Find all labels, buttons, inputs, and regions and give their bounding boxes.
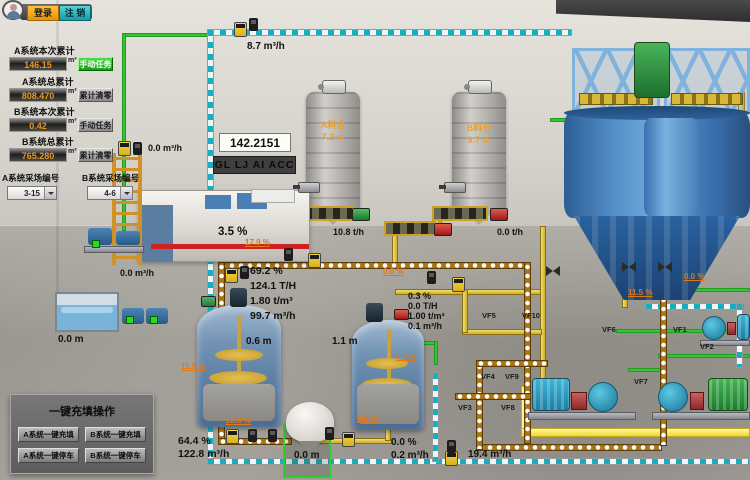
valve-pct-right-top: 0.0 % (684, 272, 704, 281)
totalizer-display: 142.2151 (219, 133, 291, 152)
valve-vf10[interactable] (518, 322, 541, 339)
valve-vf9[interactable] (504, 351, 527, 368)
tag-vf6: VF6 (602, 325, 616, 334)
ftank-agitator-1 (205, 195, 231, 209)
water-storage-tank[interactable] (55, 292, 119, 332)
pipe-green-tank2-drop (434, 341, 438, 365)
valve-pct-right-mid: 11.5 % (628, 288, 652, 297)
pump-2-coupling (690, 392, 704, 410)
silo-a-level: 7.2 m (306, 132, 360, 142)
valve-vf7[interactable] (636, 359, 659, 376)
feed-pump-run-indicator (92, 240, 100, 248)
water-pump-2-indicator (150, 316, 158, 324)
valve-vf3[interactable] (457, 384, 480, 401)
hmi-screen: 8.7 m³/h 0.0 m³/h 0.0 m³/h 3.5 % 0.0 m 0… (0, 0, 750, 480)
valve-spare[interactable] (527, 345, 550, 362)
water-pump-1-indicator (126, 316, 134, 324)
manual-valve-2-icon (622, 262, 636, 272)
pump-3-coupling (727, 322, 736, 335)
row-b-batch-value: 0.42 (9, 118, 67, 132)
tag-vf5: VF5 (482, 311, 496, 320)
pump-1-volute[interactable] (588, 382, 618, 412)
silo-a-name: A料仓 (306, 118, 360, 131)
drain-flowmeter-icon (445, 451, 458, 466)
row-a-batch-unit: m³ (68, 57, 77, 64)
one-key-title: 一键充填操作 (11, 403, 153, 419)
tag-vf8: VF8 (501, 403, 515, 412)
valve-pct-line-b: 0.0 % (383, 267, 403, 276)
row-b-batch-unit: m³ (68, 118, 77, 125)
site-a-select[interactable]: 3-15 (7, 186, 57, 200)
transmitter-left-bottom-icon (240, 266, 249, 279)
a-one-key-stop-button[interactable]: A系统一键停车 (18, 448, 79, 463)
hopper-line-valve[interactable] (358, 422, 381, 439)
agitator-2-motor[interactable] (366, 303, 383, 322)
row-a-batch-value: 146.15 (9, 57, 67, 71)
line-b-readings: 0.3 % 0.0 T/H 1.00 t/m³ 0.1 m³/h (408, 291, 445, 331)
left-wall-valve[interactable] (157, 356, 180, 373)
transmitter-left-top-icon (133, 142, 142, 155)
pump-train-2-base (652, 412, 750, 420)
hopper-line-inst (325, 427, 334, 440)
login-button[interactable]: 登录 (27, 5, 59, 21)
bottom-left-readings: 64.4 % 122.8 m³/h (178, 435, 229, 461)
b-one-key-fill-button[interactable]: B系统一键充填 (85, 427, 146, 442)
pump-3-motor[interactable] (737, 314, 750, 340)
status-marquee: GL LJ AI ACC (213, 156, 296, 174)
tag-vf3: VF3 (458, 403, 472, 412)
right-top-valve[interactable] (680, 280, 703, 297)
pipe-water-tank2-drain (432, 372, 439, 462)
tag-vf1: VF1 (673, 325, 687, 334)
slurry-control-valve[interactable] (252, 248, 275, 265)
site-b-label: B系统采场编号 (82, 172, 139, 184)
pump-3-volute[interactable] (702, 316, 726, 340)
pipe-yellow-discharge-main (521, 428, 750, 437)
row-b-batch-label: B系统本次累计 (14, 105, 75, 118)
silo-b-blower-motor (468, 80, 492, 94)
reset-total-a-button[interactable]: 累计清零 (78, 88, 113, 102)
valve-vf4[interactable] (481, 351, 504, 368)
silo-b-level: 9.7 m (452, 135, 506, 145)
flowmeter-left-top-icon (118, 141, 131, 156)
logout-button[interactable]: 注 销 (59, 5, 91, 21)
manual-valve-3-icon (658, 262, 672, 272)
pump-1-motor[interactable] (532, 378, 570, 411)
site-a-label: A系统采场编号 (2, 172, 59, 184)
valve-pct-hopper-line: 0.0 % (357, 414, 377, 423)
ftank-frame (139, 205, 173, 262)
flowmeter-a-icon (308, 253, 321, 268)
conveyor-mid[interactable] (384, 221, 436, 236)
flowmeter-top-icon (234, 22, 247, 37)
valve-vf6[interactable] (619, 321, 642, 338)
site-b-select[interactable]: 4-6 (87, 186, 133, 200)
pump-2-volute[interactable] (658, 382, 688, 412)
feed-pump-2[interactable] (116, 231, 140, 245)
left-top-flow-reading: 0.0 m³/h (148, 143, 182, 153)
tag-vf7: VF7 (634, 377, 648, 386)
row-b-total-value: 765.280 (9, 148, 67, 162)
tag-vf4: VF4 (481, 372, 495, 381)
manual-task-b-button[interactable]: 手动任务 (78, 118, 113, 132)
agitator-1-motor[interactable] (230, 288, 247, 307)
reset-total-b-button[interactable]: 累计清零 (78, 148, 113, 162)
conveyor-a-motor[interactable] (352, 208, 370, 221)
row-b-total-label: B系统总累计 (22, 135, 74, 148)
pipe-water-top (207, 29, 572, 36)
valve-pct-left: 11.9 % (181, 362, 205, 371)
silo-b-name: B料仓 (452, 121, 506, 134)
silo-a-blower-motor (322, 80, 346, 94)
one-key-panel: 一键充填操作 A系统一键充填 B系统一键充填 A系统一键停车 B系统一键停车 (10, 394, 154, 474)
a-one-key-fill-button[interactable]: A系统一键充填 (18, 427, 79, 442)
valve-vf8[interactable] (500, 384, 523, 401)
agitator-1-aux-pump (201, 296, 216, 307)
thickener-feedwell (644, 118, 698, 216)
silo-a-level-sensor (298, 182, 320, 193)
transmitter-top-icon (249, 18, 258, 31)
hopper-line-meter-icon (342, 432, 355, 447)
left-bottom-flow-reading: 0.0 m³/h (120, 268, 154, 278)
row-b-total-unit: m³ (68, 148, 77, 155)
bridge-conveyor-right (671, 93, 743, 105)
silo-b-level-sensor (444, 182, 466, 193)
conveyor-b-rate: 0.0 t/h (497, 227, 523, 237)
b-one-key-stop-button[interactable]: B系统一键停车 (85, 448, 146, 463)
density-meter-a-icon (284, 248, 293, 261)
row-a-total-value: 808.470 (9, 88, 67, 102)
water-level: 0.0 m (58, 334, 84, 345)
row-a-total-unit: m³ (68, 88, 77, 95)
conveyor-b-motor[interactable] (490, 208, 508, 221)
density-meter-b-icon (427, 271, 436, 284)
drain-transmitter-icon (447, 440, 456, 453)
top-flow-reading: 8.7 m³/h (247, 41, 285, 52)
tank2-level: 1.1 m (332, 336, 358, 347)
pump-2-motor[interactable] (708, 378, 748, 411)
valve-pct-tank2-out: 0.0 % (396, 352, 416, 361)
manual-valve-1-icon (546, 266, 560, 276)
tag-vf9: VF9 (505, 372, 519, 381)
valve-pct-tank1-out: 28.8 % (226, 416, 251, 425)
row-a-total-label: A系统总累计 (22, 75, 74, 88)
ftank-top-slab (251, 189, 295, 203)
conveyor-mid-motor[interactable] (434, 223, 452, 236)
tank1-level: 0.6 m (246, 336, 272, 347)
manual-task-a-button[interactable]: 手动任务 (78, 57, 113, 71)
tag-vf10: VF10 (522, 311, 540, 320)
pump-train-1-base (528, 412, 636, 420)
drain-flow-reading: 19.4 m³/h (468, 449, 511, 460)
thickener-bridge-right (664, 48, 750, 114)
bottom-mid-readings: 0.0 % 0.2 m³/h (391, 437, 429, 463)
row-a-batch-label: A系统本次累计 (14, 44, 75, 57)
valve-vf5[interactable] (478, 322, 501, 339)
tank1-out-inst-1 (248, 429, 257, 442)
pipe-green-top (124, 33, 209, 37)
valve-vf1[interactable] (649, 321, 672, 338)
tank1-out-inst-2 (268, 429, 277, 442)
flowmeter-left-bottom-icon (225, 268, 238, 283)
conveyor-a-rate: 10.8 t/h (333, 227, 364, 237)
flowmeter-b-icon (452, 277, 465, 292)
pipe-yellow-branch (462, 289, 468, 333)
hopper-level: 0.0 m (294, 450, 320, 461)
valve-pct-line-a: 17.9 % (245, 238, 270, 247)
line-a-readings: 69.2 % 124.1 T/H 1.80 t/m³ 99.7 m³/h (250, 265, 296, 325)
fine-tank-level: 3.5 % (218, 226, 247, 238)
thickener-drive-motor[interactable] (634, 42, 670, 98)
conveyor-b[interactable] (432, 206, 488, 221)
user-avatar[interactable] (2, 0, 24, 20)
tag-vf2: VF2 (700, 342, 714, 351)
agitator-2-aux-pump (394, 309, 409, 320)
pump-1-coupling (571, 392, 587, 410)
